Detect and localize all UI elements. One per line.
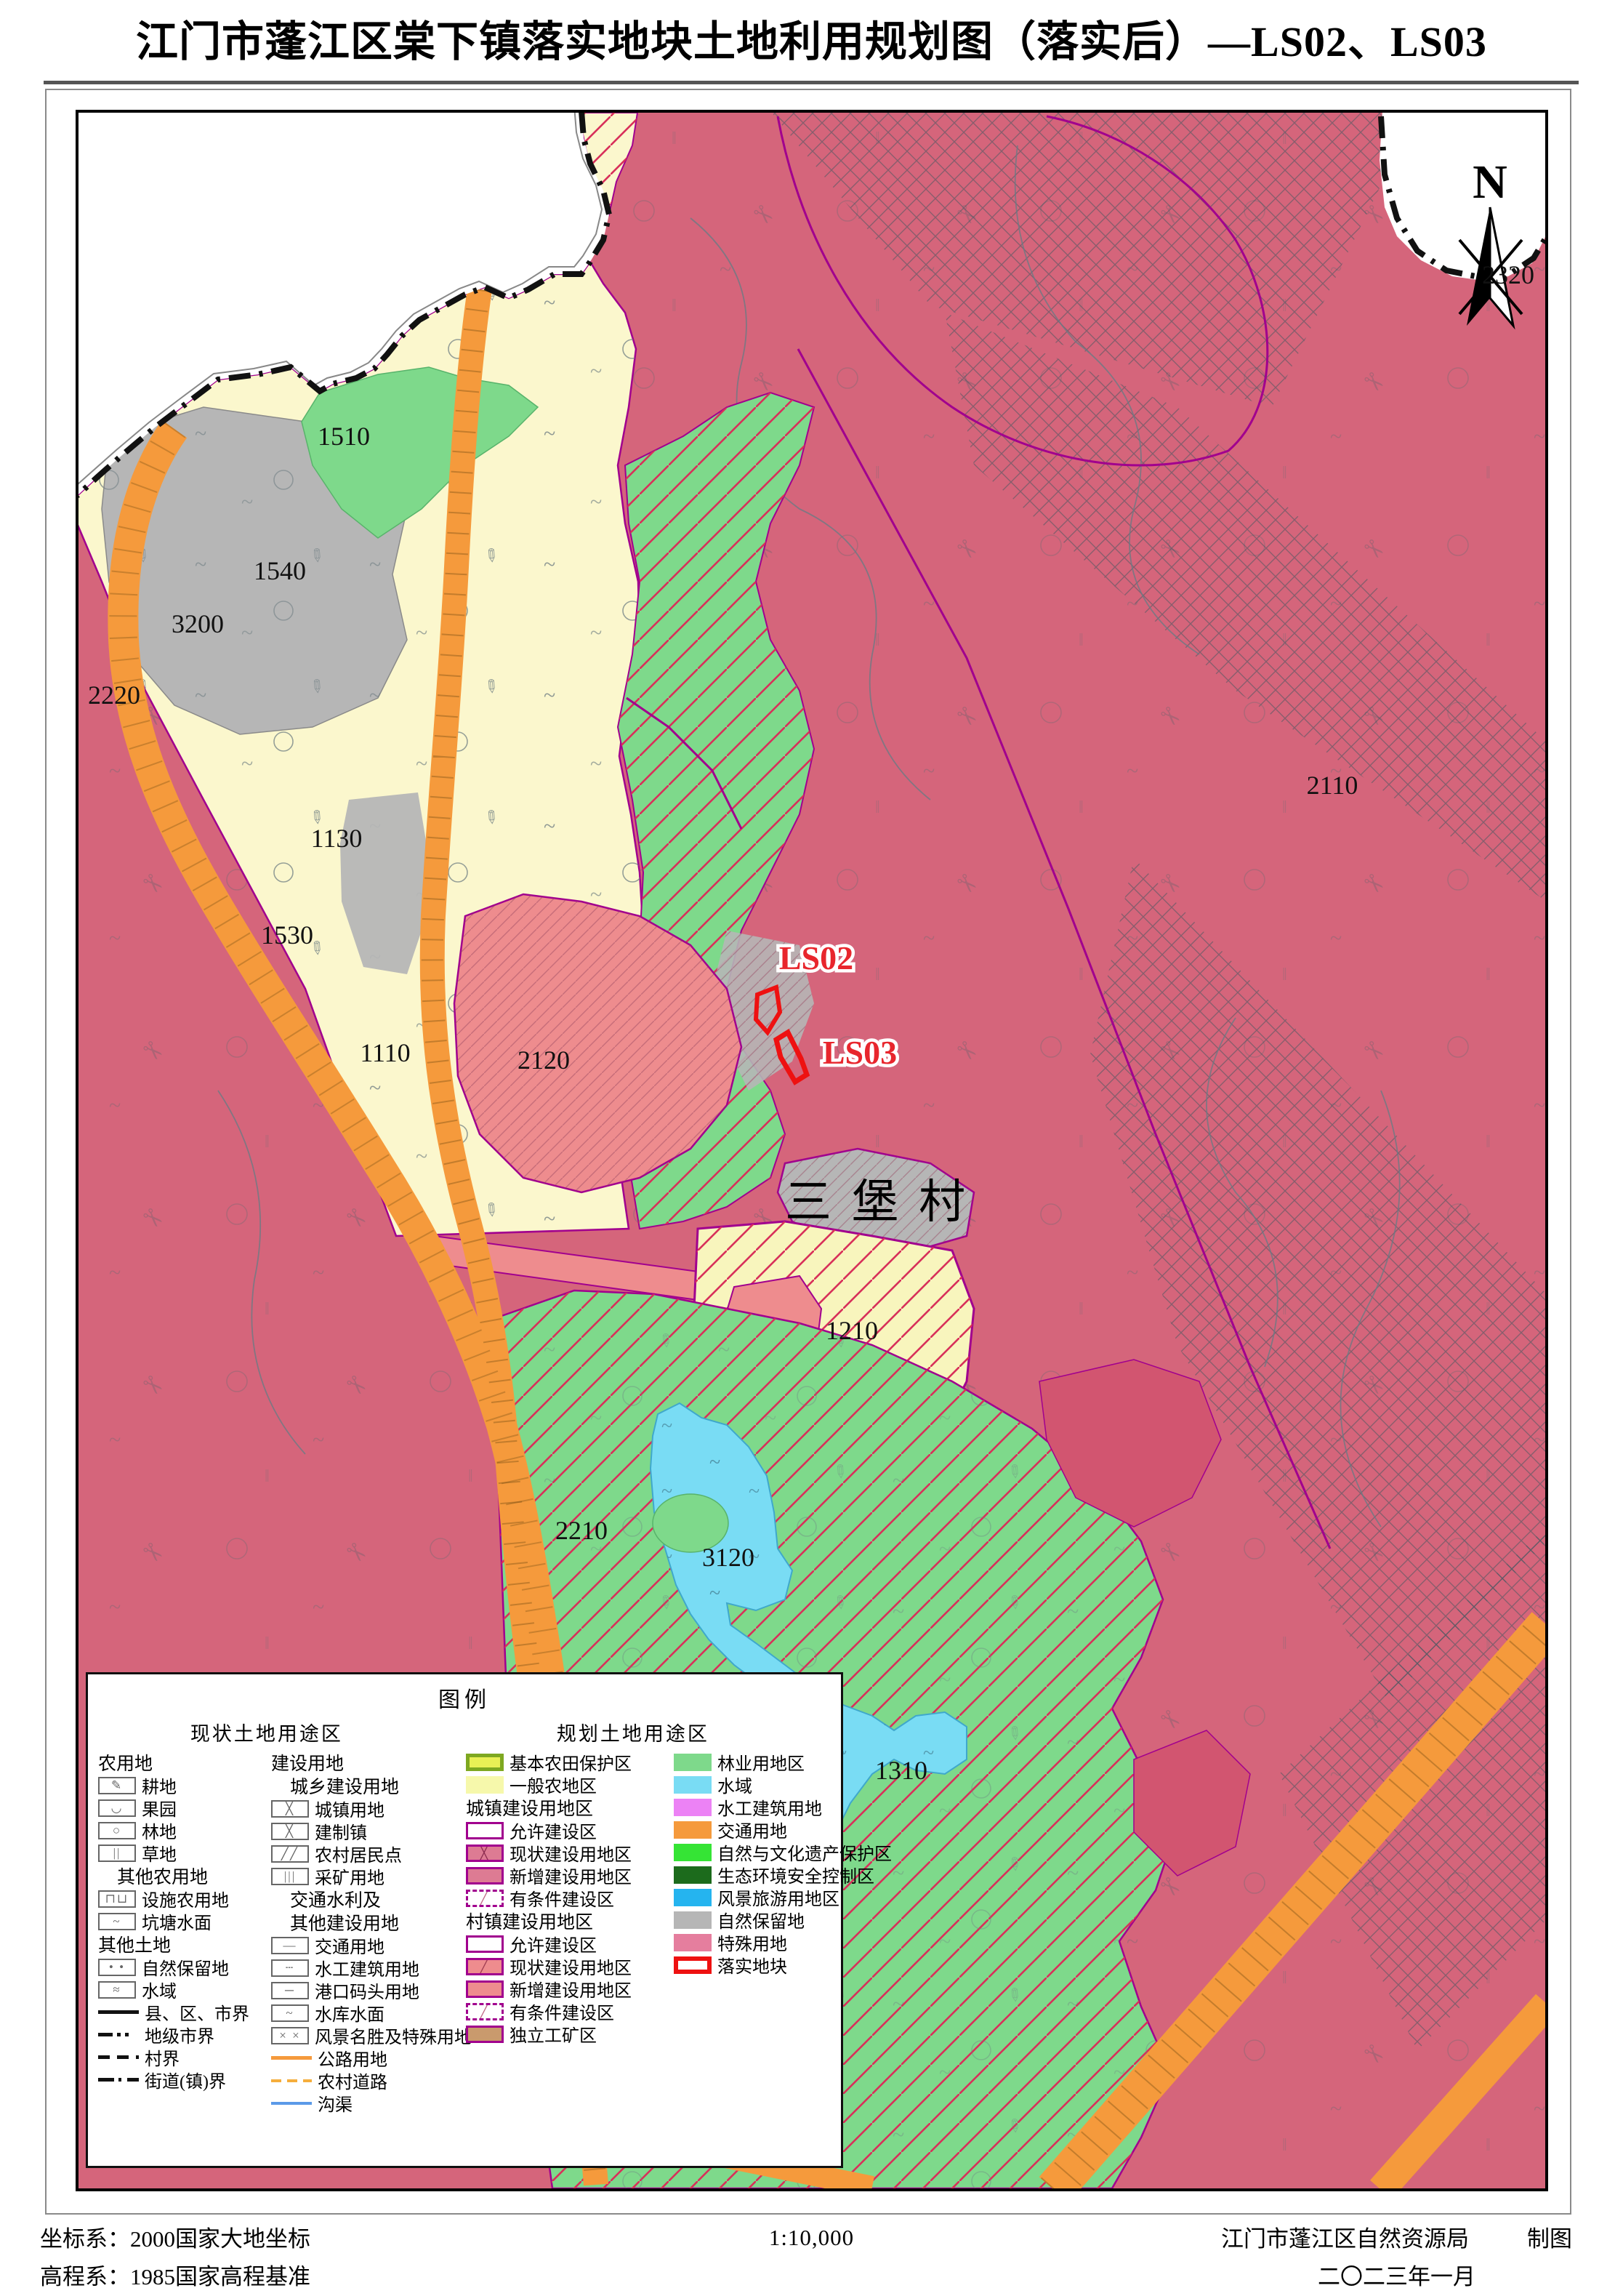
legend-planned1-swatch-12 bbox=[466, 2026, 504, 2043]
legend-planned1-label-6: 有条件建设区 bbox=[510, 1885, 614, 1911]
legend-current1-swatch-4: || bbox=[98, 1845, 136, 1862]
legend-planned1-swatch-5 bbox=[466, 1867, 504, 1884]
agency-name: 江门市蓬江区自然资源局 bbox=[1221, 2226, 1469, 2252]
legend-current1-swatch-1: ✎ bbox=[98, 1777, 136, 1794]
legend-planned2-item-4: 自然与文化遗产保护区 bbox=[674, 1841, 848, 1863]
legend-planned1-swatch-3 bbox=[466, 1822, 504, 1839]
map-label-1310: 1310 bbox=[875, 1756, 927, 1785]
legend-planned1-item-5: 新增建设用地区 bbox=[466, 1864, 674, 1887]
legend-current2-swatch-5: ||| bbox=[271, 1868, 309, 1885]
legend-planned2-label-5: 生态环境安全控制区 bbox=[717, 1862, 874, 1887]
legend-planned2-swatch-7 bbox=[674, 1911, 712, 1929]
legend-current1-item-13: 村界 bbox=[98, 2046, 271, 2068]
legend-planned2-item-0: 林业用地区 bbox=[674, 1751, 848, 1773]
legend-current1-label-10: 水域 bbox=[142, 1977, 177, 2002]
legend-current1-swatch-9: • • bbox=[98, 1959, 136, 1976]
legend-current2-item-9: ┄水工建筑用地 bbox=[271, 1956, 466, 1979]
legend-planned2-item-5: 生态环境安全控制区 bbox=[674, 1863, 848, 1886]
legend-current2-label-3: 建制镇 bbox=[315, 1818, 367, 1844]
legend-planned1-item-4: ╳现状建设用地区 bbox=[466, 1842, 674, 1864]
footer-attribution: 江门市蓬江区自然资源局制图 二〇二三年一月 bbox=[1221, 2220, 1572, 2296]
legend-current2-item-5: |||采矿用地 bbox=[271, 1865, 466, 1887]
legend-current1-swatch-2: ◡ bbox=[98, 1799, 136, 1817]
legend-planned2-item-8: 特殊用地 bbox=[674, 1931, 848, 1954]
legend-current2-swatch-3: ╳ bbox=[271, 1823, 309, 1840]
legend-current1-label-9: 自然保留地 bbox=[142, 1954, 229, 1980]
legend-planned2-label-3: 交通用地 bbox=[717, 1817, 787, 1842]
legend-current2-label-2: 城镇用地 bbox=[315, 1796, 384, 1821]
legend-planned1-label-3: 允许建设区 bbox=[510, 1818, 597, 1843]
legend-planned1-label-11: 有条件建设区 bbox=[510, 1999, 614, 2024]
legend-current2-swatch-4: ╱╱ bbox=[271, 1845, 309, 1863]
legend-planned1-label-1: 一般农地区 bbox=[510, 1772, 597, 1797]
map-label-1540: 1540 bbox=[254, 556, 306, 585]
legend-planned1-label-9: 现状建设用地区 bbox=[510, 1954, 632, 1979]
map-label-LS02: LS02 bbox=[779, 939, 853, 976]
legend-planned1-item-12: 独立工矿区 bbox=[466, 2023, 674, 2045]
legend-planned2-swatch-8 bbox=[674, 1934, 712, 1951]
legend-planned2-swatch-1 bbox=[674, 1776, 712, 1794]
legend-current1-item-9: • •自然保留地 bbox=[98, 1956, 271, 1978]
legend-planned2-swatch-4 bbox=[674, 1844, 712, 1861]
legend-current1-swatch-14 bbox=[98, 2078, 139, 2082]
legend-current1-item-11: 县、区、市界 bbox=[98, 2001, 271, 2023]
legend-planned1-label-5: 新增建设用地区 bbox=[510, 1863, 632, 1888]
legend-current2-label-13: 公路用地 bbox=[318, 2045, 387, 2071]
legend-planned2-swatch-5 bbox=[674, 1866, 712, 1884]
legend-planned2-item-2: 水工建筑用地 bbox=[674, 1796, 848, 1818]
map-label-1530: 1530 bbox=[261, 920, 313, 950]
legend-planned1-swatch-1 bbox=[466, 1776, 504, 1794]
map-date: 二〇二三年一月 bbox=[1221, 2258, 1572, 2296]
legend-current2-swatch-10: ─ bbox=[271, 1982, 309, 1999]
legend-current1-item-2: ◡果园 bbox=[98, 1797, 271, 1819]
legend-col-planned-2: 林业用地区水域水工建筑用地交通用地自然与文化遗产保护区生态环境安全控制区风景旅游… bbox=[674, 1751, 848, 2114]
legend-planned1-item-8: 允许建设区 bbox=[466, 1932, 674, 1955]
legend-planned1-item-9: ╱现状建设用地区 bbox=[466, 1955, 674, 1978]
legend-current2-label-4: 农村居民点 bbox=[315, 1841, 402, 1866]
legend-current2-label-9: 水工建筑用地 bbox=[315, 1955, 419, 1980]
legend-current2-item-10: ─港口码头用地 bbox=[271, 1979, 466, 2002]
map-label-3120: 3120 bbox=[702, 1543, 754, 1572]
legend-current2-swatch-15 bbox=[271, 2102, 312, 2105]
legend-current2-header-1: 城乡建设用地 bbox=[290, 1774, 466, 1797]
legend-current1-item-6: ⊓⊔设施农用地 bbox=[98, 1887, 271, 1910]
legend-current1-item-12: 地级市界 bbox=[98, 2023, 271, 2046]
legend-planned1-item-6: ╱有条件建设区 bbox=[466, 1887, 674, 1909]
legend-planned2-swatch-6 bbox=[674, 1889, 712, 1906]
legend-current1-header-0: 农用地 bbox=[98, 1751, 271, 1774]
agency-line: 江门市蓬江区自然资源局制图 bbox=[1221, 2220, 1572, 2258]
legend-current1-swatch-10: ≈ bbox=[98, 1981, 136, 1999]
legend-title: 图例 bbox=[98, 1682, 831, 1714]
legend-planned2-label-6: 风景旅游用地区 bbox=[717, 1884, 839, 1910]
legend-current2-label-15: 沟渠 bbox=[318, 2090, 353, 2116]
legend-current1-label-14: 街道(镇)界 bbox=[145, 2067, 226, 2092]
map-label-LS03: LS03 bbox=[823, 1034, 897, 1071]
legend-planned1-swatch-6: ╱ bbox=[466, 1890, 504, 1907]
legend-sections: 现状土地用途区 规划土地用途区 bbox=[98, 1718, 831, 1746]
height-datum: 高程系：1985国家高程基准 bbox=[40, 2258, 310, 2296]
legend-current2-header-6: 交通水利及 bbox=[290, 1887, 466, 1911]
legend-planned2-swatch-9 bbox=[674, 1956, 712, 1974]
map-label-2320: 2320 bbox=[1482, 260, 1534, 289]
legend-planned1-swatch-11: ╱ bbox=[466, 2003, 504, 2020]
legend-planned2-item-1: 水域 bbox=[674, 1773, 848, 1796]
legend-current1-item-14: 街道(镇)界 bbox=[98, 2068, 271, 2091]
legend-planned2-swatch-0 bbox=[674, 1754, 712, 1771]
legend-current2-item-2: ╳城镇用地 bbox=[271, 1797, 466, 1820]
legend-current2-label-5: 采矿用地 bbox=[315, 1863, 384, 1889]
legend-current1-swatch-3: ○ bbox=[98, 1822, 136, 1839]
legend-planned2-swatch-3 bbox=[674, 1821, 712, 1839]
legend-current2-item-15: 沟渠 bbox=[271, 2092, 466, 2114]
legend-current2-swatch-11: ~ bbox=[271, 2004, 309, 2022]
legend-planned2-item-3: 交通用地 bbox=[674, 1818, 848, 1841]
legend-planned1-item-3: 允许建设区 bbox=[466, 1819, 674, 1842]
legend-current1-swatch-11 bbox=[98, 2010, 139, 2014]
legend-current1-item-1: ✎耕地 bbox=[98, 1774, 271, 1797]
legend-planned1-item-11: ╱有条件建设区 bbox=[466, 2000, 674, 2023]
map-label-2110: 2110 bbox=[1307, 771, 1358, 800]
legend-planned1-label-8: 允许建设区 bbox=[510, 1931, 597, 1956]
legend-planned2-label-0: 林业用地区 bbox=[717, 1749, 805, 1775]
legend-current2-item-13: 公路用地 bbox=[271, 2047, 466, 2069]
legend-current1-label-4: 草地 bbox=[142, 1840, 177, 1866]
map-label-1210: 1210 bbox=[826, 1316, 878, 1345]
legend-planned1-item-1: 一般农地区 bbox=[466, 1773, 674, 1796]
legend-planned1-swatch-4: ╳ bbox=[466, 1845, 504, 1862]
legend-current1-item-7: ~坑塘水面 bbox=[98, 1910, 271, 1932]
map-label-2120: 2120 bbox=[517, 1045, 570, 1075]
map-label-3200: 3200 bbox=[172, 609, 224, 638]
map-label-N: N bbox=[1473, 156, 1507, 209]
legend-current2-header-0: 建设用地 bbox=[271, 1751, 466, 1774]
legend-current2-item-3: ╳建制镇 bbox=[271, 1820, 466, 1842]
legend-planned1-label-10: 新增建设用地区 bbox=[510, 1976, 632, 2002]
map-label-三堡村: 三堡村 bbox=[785, 1176, 986, 1228]
plan-map-page: 江门市蓬江区棠下镇落实地块土地利用规划图（落实后）—LS02、LS03 ~ ✎ … bbox=[0, 0, 1623, 2296]
legend-current2-item-8: —交通用地 bbox=[271, 1934, 466, 1956]
legend-planned2-swatch-2 bbox=[674, 1799, 712, 1816]
legend-current1-item-4: ||草地 bbox=[98, 1842, 271, 1864]
legend-current2-item-14: 农村道路 bbox=[271, 2069, 466, 2092]
legend-col-current-1: 农用地✎耕地◡果园○林地||草地其他农用地⊓⊔设施农用地~坑塘水面其他土地• •… bbox=[98, 1751, 271, 2114]
legend-planned2-label-2: 水工建筑用地 bbox=[717, 1794, 822, 1820]
map-label-1130: 1130 bbox=[311, 824, 363, 853]
legend-planned1-header-2: 城镇建设用地区 bbox=[466, 1796, 674, 1819]
legend-current1-label-13: 村界 bbox=[145, 2044, 180, 2070]
legend-current1-swatch-12 bbox=[98, 2033, 139, 2036]
legend-current1-label-2: 果园 bbox=[142, 1795, 177, 1821]
legend-current2-item-12: × ×风景名胜及特殊用地 bbox=[271, 2024, 466, 2047]
legend-section-planned: 规划土地用途区 bbox=[435, 1718, 831, 1746]
legend-current2-label-14: 农村道路 bbox=[318, 2068, 387, 2093]
legend-current2-swatch-14 bbox=[271, 2079, 312, 2082]
legend-current1-label-7: 坑塘水面 bbox=[142, 1908, 212, 1934]
legend-current1-label-6: 设施农用地 bbox=[142, 1886, 229, 1911]
map-label-2210: 2210 bbox=[555, 1516, 608, 1545]
map-label-2220: 2220 bbox=[88, 681, 140, 710]
legend-col-planned-1: 基本农田保护区一般农地区城镇建设用地区允许建设区╳现状建设用地区新增建设用地区╱… bbox=[466, 1751, 674, 2114]
legend-section-current: 现状土地用途区 bbox=[98, 1718, 435, 1746]
legend-current1-swatch-6: ⊓⊔ bbox=[98, 1890, 136, 1908]
legend-planned1-swatch-9: ╱ bbox=[466, 1958, 504, 1975]
legend-planned2-item-6: 风景旅游用地区 bbox=[674, 1886, 848, 1908]
legend-planned1-label-0: 基本农田保护区 bbox=[510, 1749, 632, 1775]
legend-current2-label-11: 水库水面 bbox=[315, 2000, 384, 2026]
legend-current2-label-8: 交通用地 bbox=[315, 1932, 384, 1958]
legend-planned1-swatch-8 bbox=[466, 1935, 504, 1953]
legend-planned1-item-10: 新增建设用地区 bbox=[466, 1978, 674, 2000]
legend-current2-swatch-13 bbox=[271, 2056, 312, 2060]
legend-planned2-label-9: 落实地块 bbox=[717, 1952, 787, 1978]
legend-current1-header-5: 其他农用地 bbox=[117, 1864, 271, 1887]
legend-planned2-label-4: 自然与文化遗产保护区 bbox=[717, 1839, 892, 1865]
legend-box: 图例 现状土地用途区 规划土地用途区 农用地✎耕地◡果园○林地||草地其他农用地… bbox=[86, 1672, 843, 2168]
legend-current2-label-12: 风景名胜及特殊用地 bbox=[315, 2023, 472, 2048]
map-label-1110: 1110 bbox=[360, 1038, 410, 1067]
legend-current2-swatch-8: — bbox=[271, 1937, 309, 1954]
legend-columns: 农用地✎耕地◡果园○林地||草地其他农用地⊓⊔设施农用地~坑塘水面其他土地• •… bbox=[98, 1751, 831, 2114]
legend-planned1-swatch-0 bbox=[466, 1754, 504, 1771]
legend-planned1-label-12: 独立工矿区 bbox=[510, 2021, 597, 2047]
legend-planned2-item-9: 落实地块 bbox=[674, 1954, 848, 1976]
legend-current1-label-12: 地级市界 bbox=[145, 2022, 214, 2047]
legend-planned2-label-8: 特殊用地 bbox=[717, 1930, 787, 1955]
legend-current2-item-11: ~水库水面 bbox=[271, 2002, 466, 2024]
legend-planned2-item-7: 自然保留地 bbox=[674, 1908, 848, 1931]
legend-current2-swatch-12: × × bbox=[271, 2027, 309, 2044]
legend-current1-swatch-13 bbox=[98, 2055, 139, 2059]
legend-current2-swatch-9: ┄ bbox=[271, 1959, 309, 1977]
legend-planned1-header-7: 村镇建设用地区 bbox=[466, 1909, 674, 1932]
legend-planned1-swatch-10 bbox=[466, 1980, 504, 1998]
legend-current1-label-1: 耕地 bbox=[142, 1773, 177, 1798]
legend-planned1-label-4: 现状建设用地区 bbox=[510, 1840, 632, 1866]
legend-current1-item-3: ○林地 bbox=[98, 1819, 271, 1842]
legend-current2-header-7: 其他建设用地 bbox=[290, 1911, 466, 1934]
legend-current1-item-10: ≈水域 bbox=[98, 1978, 271, 2001]
legend-current1-swatch-7: ~ bbox=[98, 1913, 136, 1930]
map-label-1510: 1510 bbox=[318, 422, 370, 451]
drafter-label: 制图 bbox=[1527, 2226, 1572, 2252]
legend-current1-header-8: 其他土地 bbox=[98, 1932, 271, 1956]
legend-current2-swatch-2: ╳ bbox=[271, 1800, 309, 1818]
legend-current1-label-11: 县、区、市界 bbox=[145, 1999, 249, 2025]
legend-current2-item-4: ╱╱农村居民点 bbox=[271, 1842, 466, 1865]
legend-current1-label-3: 林地 bbox=[142, 1818, 177, 1843]
legend-current2-label-10: 港口码头用地 bbox=[315, 1978, 419, 2003]
legend-planned1-item-0: 基本农田保护区 bbox=[466, 1751, 674, 1773]
legend-planned2-label-1: 水域 bbox=[717, 1772, 752, 1797]
legend-col-current-2: 建设用地城乡建设用地╳城镇用地╳建制镇╱╱农村居民点|||采矿用地交通水利及其他… bbox=[271, 1751, 466, 2114]
legend-planned2-label-7: 自然保留地 bbox=[717, 1907, 805, 1932]
